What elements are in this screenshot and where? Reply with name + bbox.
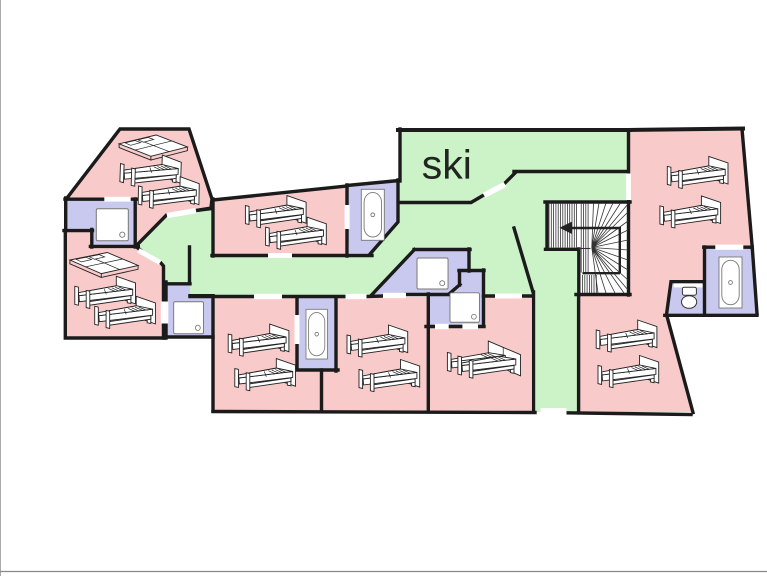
svg-text:ski: ski <box>422 141 472 187</box>
